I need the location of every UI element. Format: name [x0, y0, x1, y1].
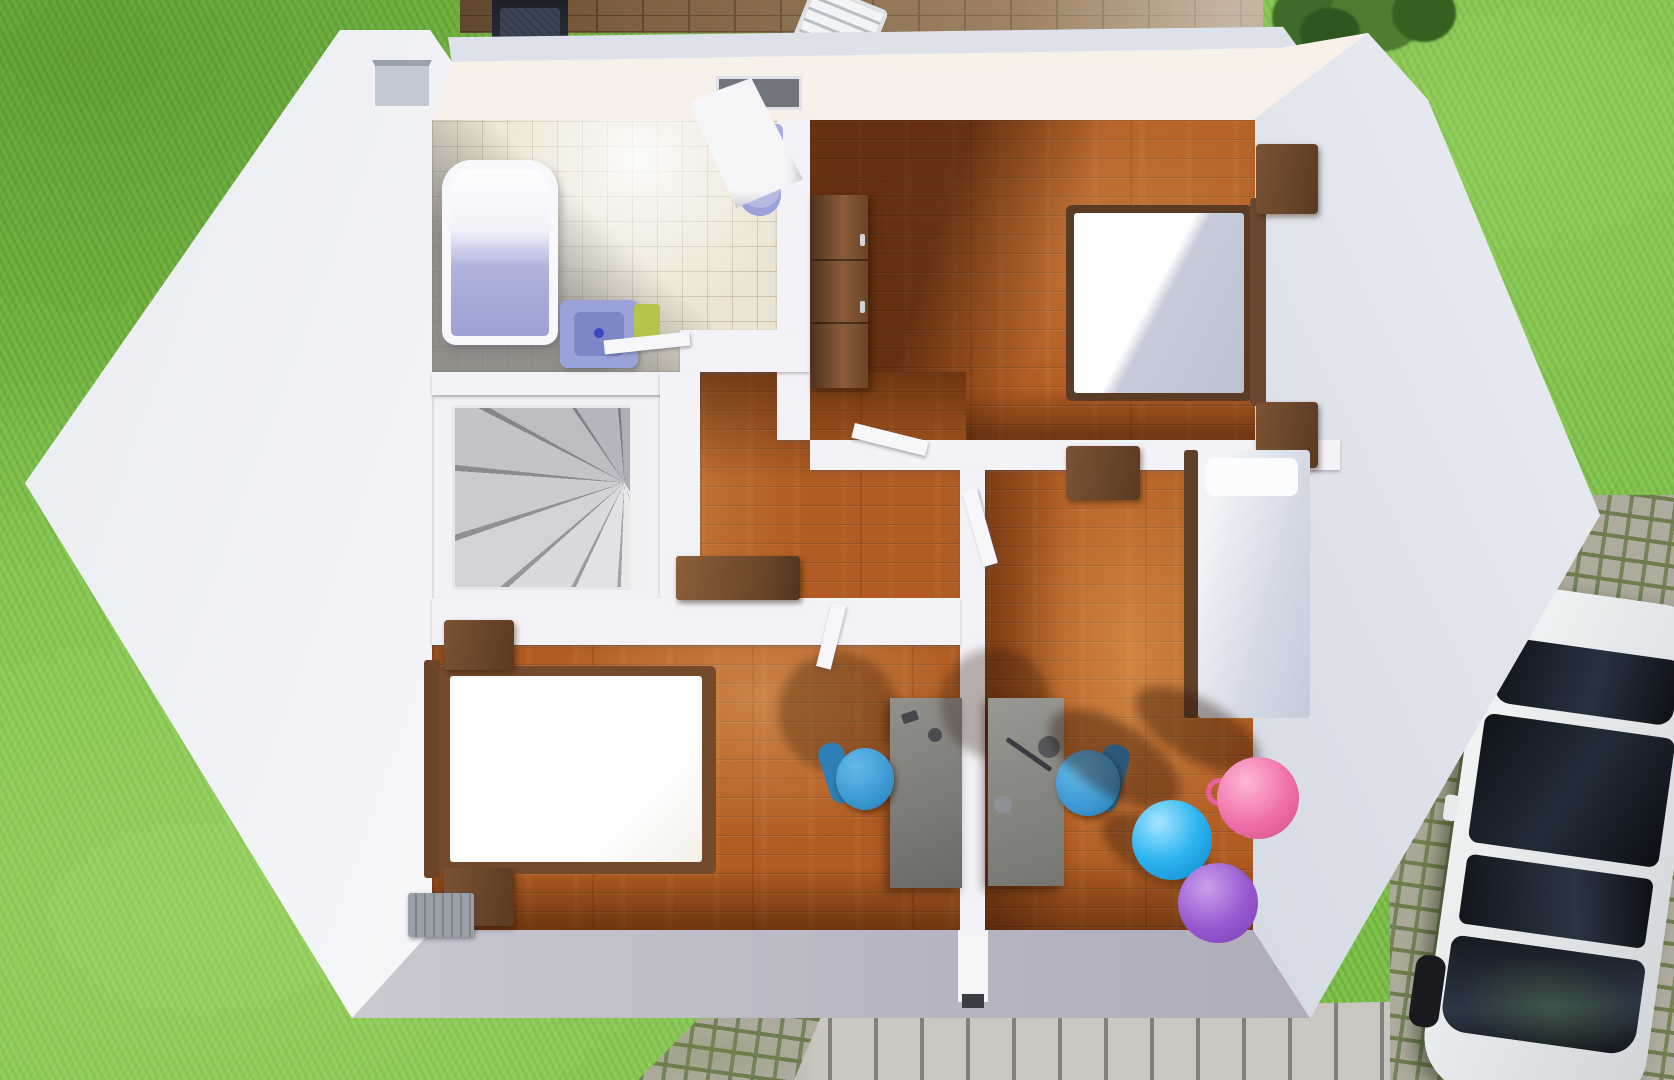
desk-lamp-base	[994, 796, 1012, 814]
desk-chair	[836, 748, 894, 810]
bed-frame-edge	[1184, 450, 1198, 718]
bed-headboard	[1250, 198, 1266, 406]
bathtub	[442, 160, 558, 345]
bed-pillow	[1206, 458, 1298, 496]
wardrobe-handle	[860, 301, 865, 313]
gym-ball-pink	[1217, 757, 1299, 839]
wall-window-recess	[372, 60, 432, 109]
wall-divider-tip	[962, 994, 984, 1008]
console-table	[676, 556, 800, 600]
wall-bathroom-hall	[680, 330, 810, 372]
double-bed	[1074, 213, 1244, 393]
floor-plan-render	[0, 0, 1674, 1080]
wardrobe-handle	[860, 234, 865, 246]
wardrobe	[812, 195, 868, 388]
desk-mug	[928, 728, 942, 742]
wall-cabinet	[1066, 446, 1140, 500]
stair-landing	[630, 405, 648, 590]
double-bed-white	[450, 676, 702, 862]
radiator	[408, 893, 474, 937]
spiral-staircase	[452, 405, 648, 590]
nightstand	[1256, 144, 1318, 214]
wall-divider-end	[958, 930, 988, 1002]
washbasin-drain	[594, 328, 604, 338]
wardrobe-shelf	[812, 259, 868, 261]
wall-bathroom-stairs	[432, 372, 680, 395]
nightstand	[444, 620, 514, 670]
wardrobe-shelf	[812, 322, 868, 324]
car-roof-panel	[1468, 713, 1674, 868]
gym-ball-purple	[1178, 863, 1258, 943]
